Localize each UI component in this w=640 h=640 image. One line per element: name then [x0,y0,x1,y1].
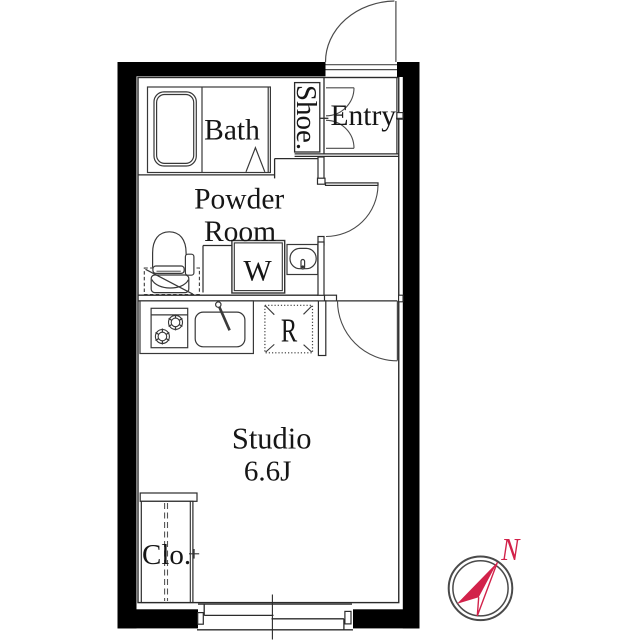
svg-text:Shoe.: Shoe. [290,85,322,150]
svg-text:Powder: Powder [194,183,284,215]
svg-text:N: N [500,533,521,567]
svg-text:Clo.: Clo. [142,539,191,571]
svg-text:6.6J: 6.6J [244,455,292,487]
svg-text:W: W [243,254,272,287]
svg-text:Entry: Entry [331,100,397,132]
svg-text:Bath: Bath [204,115,260,147]
svg-text:Room: Room [204,216,276,248]
svg-text:R: R [281,313,298,350]
svg-text:Studio: Studio [232,421,312,455]
